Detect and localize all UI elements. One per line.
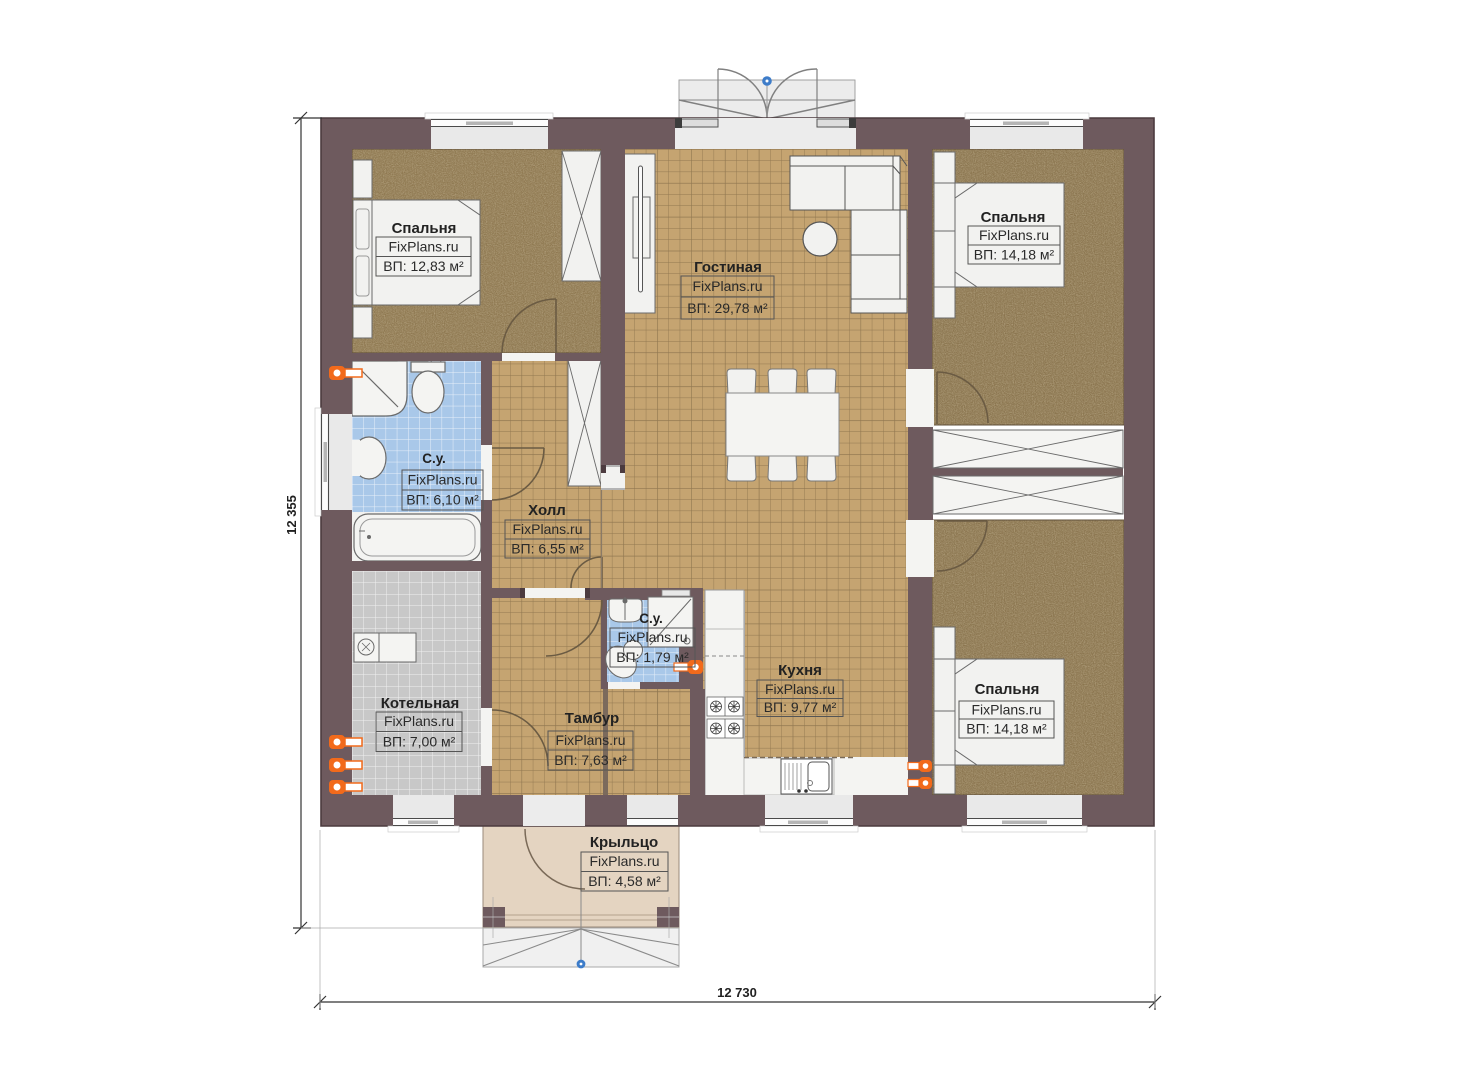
svg-text:FixPlans.ru: FixPlans.ru: [407, 472, 477, 488]
svg-text:Кухня: Кухня: [778, 662, 822, 679]
svg-text:ВП: 29,78 м²: ВП: 29,78 м²: [687, 300, 768, 316]
svg-text:12 730: 12 730: [717, 985, 757, 1000]
svg-text:Спальня: Спальня: [981, 209, 1046, 226]
svg-text:FixPlans.ru: FixPlans.ru: [555, 732, 625, 748]
svg-text:FixPlans.ru: FixPlans.ru: [971, 702, 1041, 718]
svg-text:ВП: 7,00 м²: ВП: 7,00 м²: [383, 734, 456, 750]
svg-text:ВП: 6,10 м²: ВП: 6,10 м²: [406, 492, 479, 508]
svg-text:Спальня: Спальня: [392, 220, 457, 237]
svg-text:FixPlans.ru: FixPlans.ru: [617, 629, 687, 645]
svg-text:ВП: 1,79 м²: ВП: 1,79 м²: [616, 649, 689, 665]
svg-text:ВП: 9,77 м²: ВП: 9,77 м²: [764, 699, 837, 715]
svg-text:ВП: 14,18 м²: ВП: 14,18 м²: [966, 721, 1047, 737]
svg-text:FixPlans.ru: FixPlans.ru: [765, 681, 835, 697]
svg-text:Спальня: Спальня: [975, 681, 1040, 698]
svg-text:Гостиная: Гостиная: [694, 259, 762, 276]
svg-text:FixPlans.ru: FixPlans.ru: [512, 521, 582, 537]
svg-text:FixPlans.ru: FixPlans.ru: [979, 227, 1049, 243]
svg-text:ВП: 4,58 м²: ВП: 4,58 м²: [588, 873, 661, 889]
svg-text:Тамбур: Тамбур: [565, 710, 619, 727]
svg-text:С.у.: С.у.: [422, 451, 446, 466]
svg-text:С.у.: С.у.: [639, 611, 663, 626]
svg-text:FixPlans.ru: FixPlans.ru: [589, 853, 659, 869]
svg-text:Котельная: Котельная: [381, 695, 460, 712]
svg-text:ВП: 12,83 м²: ВП: 12,83 м²: [383, 258, 464, 274]
svg-text:FixPlans.ru: FixPlans.ru: [384, 713, 454, 729]
svg-text:ВП: 14,18 м²: ВП: 14,18 м²: [974, 247, 1055, 263]
svg-text:ВП: 6,55 м²: ВП: 6,55 м²: [511, 541, 584, 557]
svg-text:Крыльцо: Крыльцо: [590, 834, 658, 851]
svg-text:12 355: 12 355: [284, 495, 299, 535]
svg-text:ВП: 7,63 м²: ВП: 7,63 м²: [554, 752, 627, 768]
svg-text:FixPlans.ru: FixPlans.ru: [388, 239, 458, 255]
svg-text:Холл: Холл: [528, 502, 566, 519]
svg-text:FixPlans.ru: FixPlans.ru: [692, 278, 762, 294]
